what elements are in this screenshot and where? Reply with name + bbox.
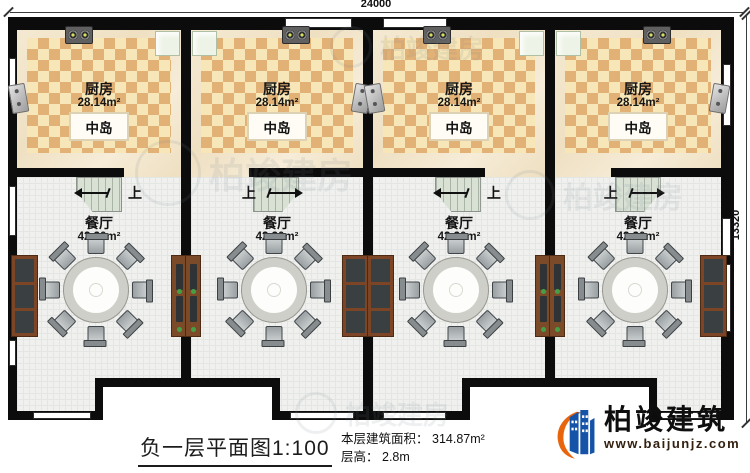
stair-up-label: 上	[242, 183, 256, 203]
kitchen-label-block: 厨房 28.14m²	[191, 81, 363, 110]
dining-chair	[87, 236, 104, 254]
floor-plan-page: 厨房 28.14m² 中岛 上 餐厅 42.30m²	[0, 0, 750, 473]
plant-icon	[177, 327, 182, 332]
burner-icon	[80, 30, 90, 40]
dining-table	[63, 257, 129, 323]
kitchen-island: 中岛	[429, 112, 489, 141]
stair-up-label: 上	[604, 183, 618, 203]
sofa-cushions	[15, 259, 34, 333]
island-label: 中岛	[625, 117, 652, 137]
baijun-logo-icon	[552, 405, 598, 461]
sideboard	[342, 255, 369, 337]
top-dimension-label: 24000	[344, 0, 408, 10]
kitchen-island: 中岛	[247, 112, 307, 141]
dining-table	[423, 257, 489, 323]
logo-text-block: 柏竣建筑 www.baijunjz.com	[604, 405, 740, 451]
dining-chair	[310, 282, 328, 299]
dining-chair	[402, 282, 420, 299]
stair-direction-arrow	[631, 192, 657, 194]
company-name: 柏竣建筑	[604, 405, 740, 436]
island-label: 中岛	[86, 117, 113, 137]
kitchen-area: 28.14m²	[555, 97, 721, 110]
kitchen-name: 厨房	[555, 81, 721, 97]
floor-height-value: 2.8m	[382, 450, 410, 464]
burner-icon	[285, 30, 295, 40]
dining-chair	[447, 236, 464, 254]
top-dimension-line	[10, 12, 744, 13]
sideboard	[549, 255, 565, 337]
wall	[8, 17, 734, 30]
sofa-cushions	[371, 259, 390, 333]
window	[9, 186, 16, 236]
burner-icon	[68, 30, 78, 40]
fridge-icon	[155, 31, 180, 56]
stove-icon	[423, 26, 451, 44]
right-dimension-line	[746, 15, 747, 423]
island-label: 中岛	[446, 117, 473, 137]
plant-icon	[191, 327, 196, 332]
sofa-cushions	[346, 259, 365, 333]
kitchen-dining-wall	[611, 168, 721, 177]
floor-area-line: 本层建筑面积： 314.87m²	[341, 430, 485, 448]
kitchen-area: 28.14m²	[17, 97, 181, 110]
kitchen-name: 厨房	[17, 81, 181, 97]
sideboard	[367, 255, 394, 337]
floor-area-label: 本层建筑面积：	[341, 432, 429, 446]
burner-icon	[658, 30, 668, 40]
sofa-cushions	[704, 259, 723, 333]
unit-3: 厨房 28.14m² 中岛 上 餐厅 42.30m²	[373, 30, 545, 411]
unit-furniture-layer: 厨房 28.14m² 中岛 上 餐厅 42.30m²	[555, 30, 721, 411]
dining-name: 餐厅	[191, 215, 363, 231]
kitchen-island: 中岛	[69, 112, 129, 141]
kitchen-label-block: 厨房 28.14m²	[17, 81, 181, 110]
dining-table-top	[433, 267, 479, 313]
dining-chair	[87, 326, 104, 344]
stove-icon	[282, 26, 310, 44]
kitchen-island: 中岛	[608, 112, 668, 141]
fridge-icon	[519, 31, 544, 56]
dining-name: 餐厅	[373, 215, 545, 231]
company-logo: 柏竣建筑 www.baijunjz.com	[552, 405, 740, 461]
stair-up-label: 上	[487, 183, 501, 203]
unit-2: 厨房 28.14m² 中岛 上 餐厅 42.30m²	[191, 30, 363, 411]
company-website: www.baijunjz.com	[604, 436, 740, 451]
floor-height-label: 层高：	[341, 450, 379, 464]
dining-chair	[132, 282, 150, 299]
kitchen-dining-wall	[373, 168, 485, 177]
stair-direction-arrow	[269, 192, 295, 194]
stair-up-label: 上	[128, 183, 142, 203]
unit-furniture-layer: 厨房 28.14m² 中岛 上 餐厅 42.30m²	[191, 30, 363, 411]
dining-table-top	[612, 267, 658, 313]
dining-table-top	[251, 267, 297, 313]
window	[33, 412, 91, 419]
burner-icon	[297, 30, 307, 40]
floor-height-line: 层高： 2.8m	[341, 448, 485, 466]
dining-chair	[42, 282, 60, 299]
kitchen-label-block: 厨房 28.14m²	[555, 81, 721, 110]
burner-icon	[438, 30, 448, 40]
plan-title: 负一层平面图1:100	[138, 432, 332, 467]
window	[9, 340, 16, 366]
plan-scale: 1:100	[272, 437, 330, 460]
plant-icon	[555, 327, 560, 332]
plan-title-text: 负一层平面图	[140, 437, 272, 460]
dining-table-top	[73, 267, 119, 313]
staircase	[615, 177, 661, 212]
fridge-icon	[192, 31, 217, 56]
kitchen-name: 厨房	[373, 81, 545, 97]
window	[290, 412, 354, 419]
sideboard	[185, 255, 201, 337]
dining-chair	[492, 282, 510, 299]
burner-icon	[646, 30, 656, 40]
dining-chair	[220, 282, 238, 299]
unit-4: 厨房 28.14m² 中岛 上 餐厅 42.30m²	[555, 30, 721, 411]
kitchen-dining-wall	[17, 168, 124, 177]
dining-chair	[581, 282, 599, 299]
unit-furniture-layer: 厨房 28.14m² 中岛 上 餐厅 42.30m²	[373, 30, 545, 411]
dining-chair	[265, 236, 282, 254]
kitchen-name: 厨房	[191, 81, 363, 97]
dining-chair	[671, 282, 689, 299]
kitchen-label-block: 厨房 28.14m²	[373, 81, 545, 110]
dining-name: 餐厅	[17, 215, 181, 231]
window	[383, 412, 446, 419]
staircase	[253, 177, 299, 212]
plan-info-block: 本层建筑面积： 314.87m² 层高： 2.8m	[341, 430, 485, 466]
staircase	[435, 177, 481, 212]
sideboard	[700, 255, 727, 337]
right-dimension-label: 13320	[730, 195, 742, 255]
plant-icon	[541, 327, 546, 332]
dining-chair	[447, 326, 464, 344]
stair-direction-arrow	[441, 192, 467, 194]
dining-table	[241, 257, 307, 323]
kitchen-area: 28.14m²	[373, 97, 545, 110]
stove-icon	[65, 26, 93, 44]
island-label: 中岛	[264, 117, 291, 137]
floor-area-value: 314.87m²	[432, 432, 485, 446]
kitchen-area: 28.14m²	[191, 97, 363, 110]
fridge-icon	[556, 31, 581, 56]
dining-name: 餐厅	[555, 215, 721, 231]
dining-chair	[626, 326, 643, 344]
kitchen-dining-wall	[249, 168, 363, 177]
unit-furniture-layer: 厨房 28.14m² 中岛 上 餐厅 42.30m²	[17, 30, 181, 411]
unit-1: 厨房 28.14m² 中岛 上 餐厅 42.30m²	[17, 30, 181, 411]
dining-chair	[265, 326, 282, 344]
stair-direction-arrow	[82, 192, 108, 194]
sideboard	[11, 255, 38, 337]
dining-chair	[626, 236, 643, 254]
staircase	[76, 177, 122, 212]
dining-table	[602, 257, 668, 323]
stove-icon	[643, 26, 671, 44]
burner-icon	[426, 30, 436, 40]
